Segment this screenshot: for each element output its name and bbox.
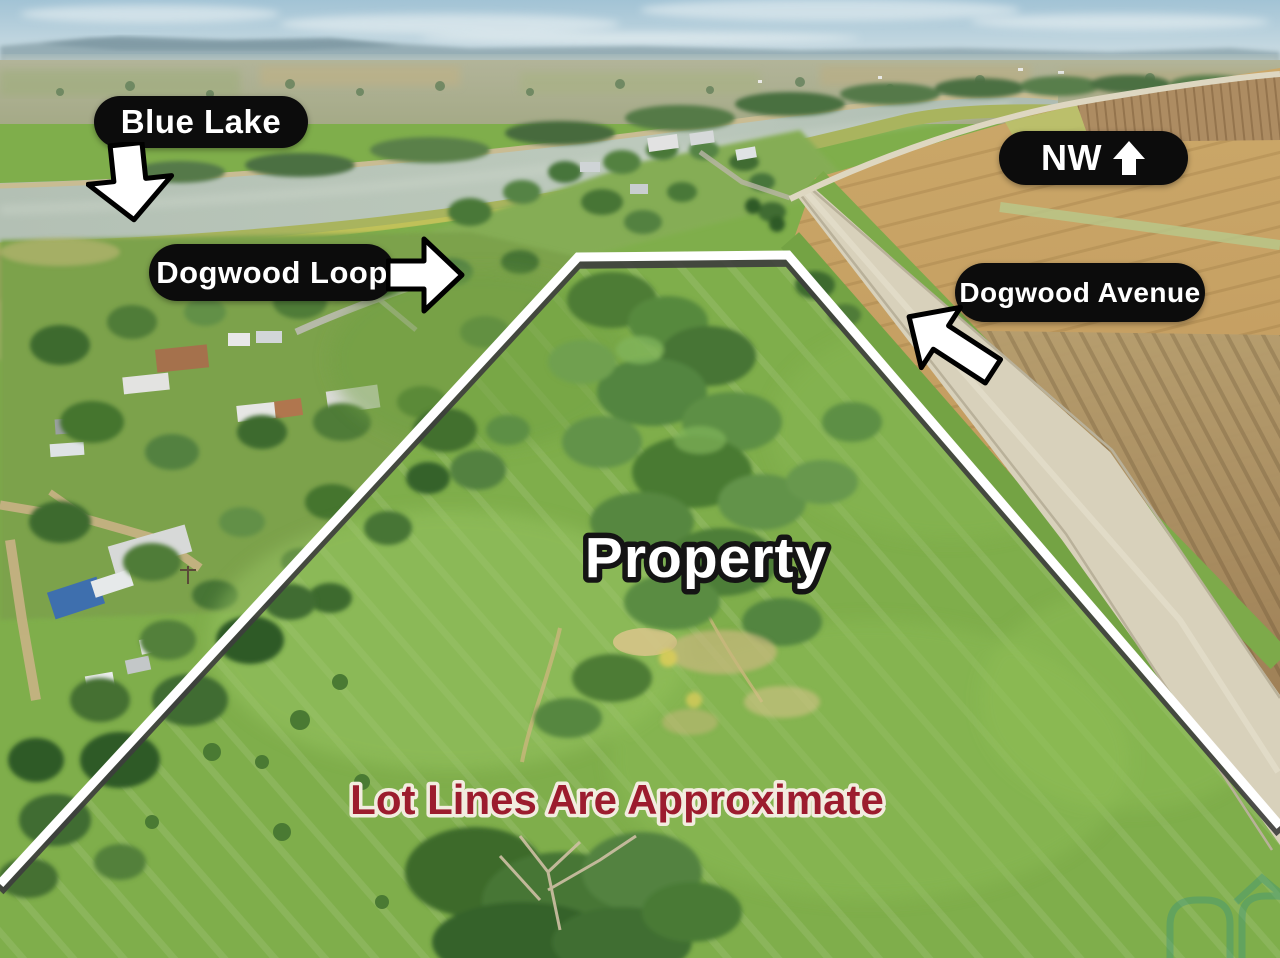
dogwood-loop-label: Dogwood Loop bbox=[149, 244, 395, 301]
arrow-down-icon bbox=[86, 142, 178, 226]
compass-label-text: NW bbox=[1041, 137, 1102, 179]
dogwood-loop-label-text: Dogwood Loop bbox=[156, 255, 388, 291]
arrow-up-icon bbox=[1112, 140, 1146, 176]
compass-label: NW bbox=[999, 131, 1188, 185]
arrow-down-left-icon bbox=[893, 294, 1009, 394]
blue-lake-label: Blue Lake bbox=[94, 96, 308, 148]
blue-lake-label-text: Blue Lake bbox=[121, 103, 281, 141]
arrow-right-icon bbox=[386, 231, 466, 317]
listing-photo-canvas: Property Lot Lines Are Approximate Blue … bbox=[0, 0, 1280, 958]
